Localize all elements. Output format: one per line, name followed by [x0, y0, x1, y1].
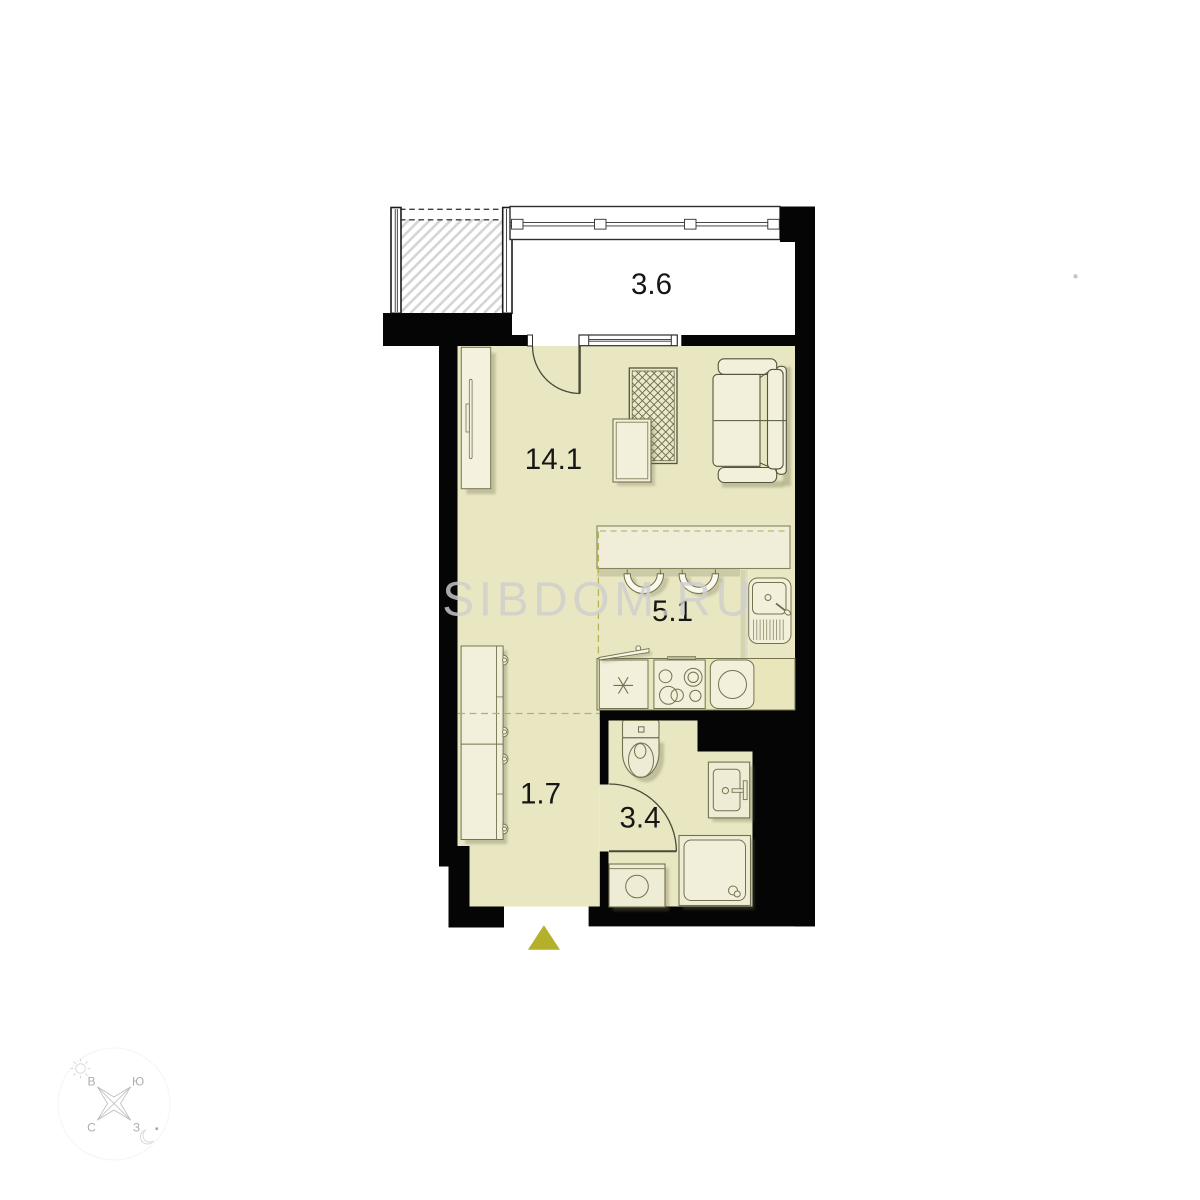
- svg-text:Ю: Ю: [132, 1075, 144, 1089]
- svg-text:SIBDOM.RU: SIBDOM.RU: [442, 574, 755, 627]
- svg-text:1.7: 1.7: [520, 778, 561, 811]
- svg-text:3.6: 3.6: [631, 268, 672, 301]
- svg-text:С: С: [87, 1121, 96, 1135]
- svg-text:З: З: [133, 1121, 140, 1135]
- svg-text:3.4: 3.4: [619, 802, 660, 835]
- svg-text:14.1: 14.1: [525, 443, 582, 476]
- svg-text:В: В: [87, 1075, 95, 1089]
